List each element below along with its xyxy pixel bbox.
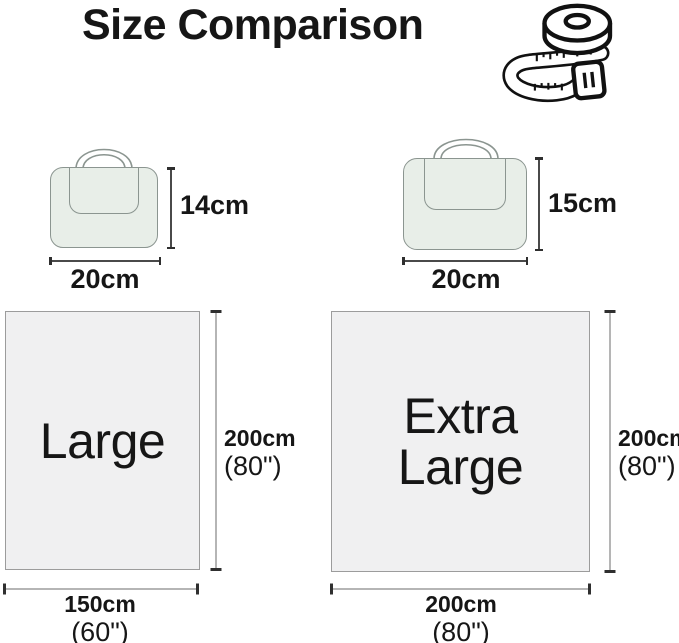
blanket-size-label: Large bbox=[40, 416, 165, 466]
bag-width-label: 20cm bbox=[431, 264, 500, 295]
height-cm-label: 200cm bbox=[224, 426, 296, 451]
bag-width-label: 20cm bbox=[70, 264, 139, 295]
tape-roll bbox=[545, 6, 610, 53]
bag-handle-icon bbox=[430, 131, 502, 160]
width-inch-label: (60") bbox=[64, 618, 136, 643]
width-cm-label: 200cm bbox=[425, 592, 497, 617]
size-comparison-infographic: Size Comparison bbox=[0, 0, 679, 643]
width-inch-label: (80") bbox=[425, 618, 497, 643]
height-inch-label: (80") bbox=[224, 452, 296, 480]
width-cm-label: 150cm bbox=[64, 592, 136, 617]
blanket-height-labels: 200cm (80") bbox=[618, 426, 679, 480]
blanket-height-dimension-line bbox=[609, 311, 611, 572]
bag-flap bbox=[69, 168, 139, 214]
blanket-width-labels: 150cm (60") bbox=[64, 592, 136, 643]
bag-height-label: 15cm bbox=[548, 188, 617, 219]
blanket-rect: Extra Large bbox=[331, 311, 590, 572]
blanket-width-dimension-line bbox=[331, 588, 590, 590]
blanket-width-labels: 200cm (80") bbox=[425, 592, 497, 643]
blanket-rect: Large bbox=[5, 311, 200, 570]
bag-height-label: 14cm bbox=[180, 190, 249, 221]
blanket-height-dimension-line bbox=[215, 311, 217, 570]
tape-measure-icon bbox=[502, 2, 614, 106]
height-cm-label: 200cm bbox=[618, 426, 679, 451]
tape-end-tab bbox=[573, 61, 605, 98]
height-inch-label: (80") bbox=[618, 452, 679, 480]
blanket-width-dimension-line bbox=[4, 588, 198, 590]
bag-width-dimension-line bbox=[50, 260, 160, 262]
bag-height-dimension-line bbox=[538, 158, 540, 250]
bag-handle-icon bbox=[72, 141, 136, 170]
blanket-size-label: Extra Large bbox=[361, 391, 561, 493]
blanket-height-labels: 200cm (80") bbox=[224, 426, 296, 480]
bag-flap bbox=[424, 159, 506, 210]
bag-width-dimension-line bbox=[403, 260, 527, 262]
bag-height-dimension-line bbox=[170, 168, 172, 248]
page-title: Size Comparison bbox=[82, 1, 423, 49]
